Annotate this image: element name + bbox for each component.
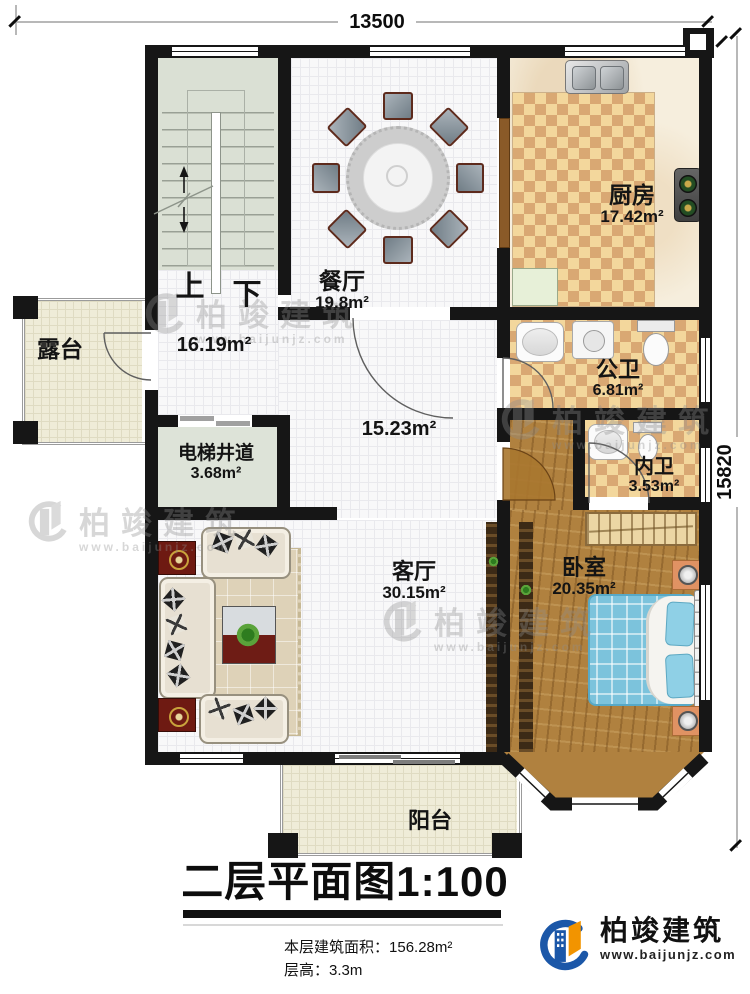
wall — [278, 58, 291, 295]
bay-window-pane-line — [520, 773, 545, 797]
brand-logo-icon — [536, 916, 592, 978]
dining-table-lazy-susan — [386, 165, 408, 187]
wall — [277, 415, 290, 520]
watermark-brand: 柏竣建筑 — [434, 598, 602, 643]
watermark: 柏竣建筑www.baijunjz.com — [498, 396, 720, 452]
room-area: 20.35m² — [542, 580, 626, 599]
room-name: 客厅 — [374, 560, 454, 584]
room-area: 30.15m² — [374, 584, 454, 603]
floor-height-row: 层高：3.3m — [284, 959, 452, 982]
stair-down-label: 下 — [230, 280, 264, 312]
wall — [145, 752, 180, 765]
room-label-balcony: 阳台 — [401, 809, 459, 833]
bedroom-closet — [585, 512, 697, 546]
brand-block: 柏竣建筑 www.baijunjz.com — [536, 916, 736, 978]
sliding-door-panel — [339, 755, 401, 759]
wall — [497, 58, 510, 118]
kitchen-door-leaf — [499, 118, 510, 248]
title-rule-thin — [183, 924, 503, 926]
wall — [145, 390, 158, 752]
watermark: 柏竣建筑www.baijunjz.com — [380, 598, 602, 654]
chimney-flue-opening — [690, 34, 706, 50]
terrace-post — [13, 296, 38, 319]
wall — [699, 700, 712, 752]
elevator-door — [180, 416, 214, 421]
watermark-brand: 柏竣建筑 — [552, 396, 720, 441]
wall — [145, 45, 158, 330]
wall — [145, 415, 178, 427]
dining-chair — [456, 163, 484, 193]
bathroom-sink — [516, 322, 564, 362]
wall — [699, 45, 712, 338]
brand-url: www.baijunjz.com — [600, 947, 736, 962]
room-label-terrace: 露台 — [31, 337, 89, 362]
bay-window-wall — [504, 758, 704, 804]
dining-chair — [312, 163, 340, 193]
room-name: 厨房 — [587, 183, 677, 208]
bay-window-floor — [504, 752, 704, 801]
room-name: 内卫 — [616, 456, 692, 478]
window — [370, 45, 470, 58]
sliding-door-panel — [393, 760, 455, 764]
dimension-tick — [715, 35, 727, 47]
dimension-width-label: 13500 — [338, 11, 416, 35]
stair-up-label: 上 — [173, 272, 207, 304]
bay-window-pane — [520, 773, 545, 797]
room-label-hall: 15.23m² — [354, 418, 444, 440]
wall — [699, 502, 712, 585]
dining-chair — [383, 236, 413, 264]
watermark-brand: 柏竣建筑 — [79, 498, 247, 543]
wall — [460, 752, 510, 765]
room-area: 3.68m² — [166, 465, 266, 483]
window — [699, 585, 712, 700]
room-label-stair-hall: 16.19m² — [168, 334, 260, 356]
floor-area-label: 本层建筑面积： — [284, 939, 389, 956]
bed-pillow — [665, 653, 695, 698]
watermark-logo-icon — [25, 498, 71, 552]
elevator-door — [216, 421, 250, 426]
room-area: 19.8m² — [298, 294, 386, 313]
watermark: 柏竣建筑www.baijunjz.com — [25, 498, 247, 554]
kitchen-cabinet — [512, 268, 558, 306]
watermark-url: www.baijunjz.com — [552, 438, 720, 452]
room-label-elevator: 电梯井道 3.68m² — [166, 444, 266, 482]
wall — [497, 307, 712, 320]
washing-machine — [572, 321, 614, 359]
table-lamp — [678, 711, 698, 731]
window — [565, 45, 685, 58]
wall — [573, 497, 589, 510]
floor-plan: 13500 15820 — [0, 0, 750, 994]
wall — [470, 45, 565, 58]
room-name: 公卫 — [584, 358, 652, 382]
table-lamp — [678, 565, 698, 585]
room-area: 15.23m² — [354, 418, 444, 440]
room-name: 露台 — [31, 337, 89, 362]
gas-stove — [674, 168, 702, 222]
window — [172, 45, 258, 58]
kitchen-sink — [565, 60, 629, 94]
room-area: 3.53m² — [616, 478, 692, 496]
potted-plant — [488, 556, 499, 567]
brand-name: 柏竣建筑 — [600, 916, 736, 947]
room-name: 餐厅 — [298, 269, 386, 294]
room-label-bedroom: 卧室 20.35m² — [542, 556, 626, 599]
window — [699, 448, 712, 502]
plan-title: 二层平面图1:100 — [145, 848, 545, 909]
stair-handrail — [211, 112, 221, 294]
room-name: 电梯井道 — [166, 444, 266, 465]
wall — [497, 320, 510, 358]
bay-window-pane-line — [663, 773, 688, 797]
room-label-public-bath: 公卫 6.81m² — [584, 358, 652, 400]
sliding-door — [335, 752, 460, 765]
window — [180, 752, 243, 765]
floor-height-value: 3.3m — [329, 962, 362, 979]
dining-chair — [383, 92, 413, 120]
watermark-url: www.baijunjz.com — [79, 540, 247, 554]
floor-height-label: 层高： — [284, 962, 329, 979]
side-table — [158, 698, 196, 732]
terrace-railing — [22, 298, 145, 445]
title-rule-thick — [183, 910, 501, 918]
room-label-dining: 餐厅 19.8m² — [298, 269, 386, 313]
coffee-table-plant — [235, 622, 261, 648]
watermark-logo-icon — [498, 396, 544, 450]
room-area: 16.19m² — [168, 334, 260, 356]
room-label-inner-bath: 内卫 3.53m² — [616, 456, 692, 496]
terrace-post — [13, 421, 38, 444]
wall — [258, 45, 370, 58]
room-label-kitchen: 厨房 17.42m² — [587, 183, 677, 227]
room-label-living: 客厅 30.15m² — [374, 560, 454, 603]
window — [699, 338, 712, 402]
watermark-url: www.baijunjz.com — [434, 640, 602, 654]
room-area: 6.81m² — [584, 382, 652, 400]
watermark-logo-icon — [380, 598, 426, 652]
plan-summary: 本层建筑面积：156.28m² 层高：3.3m — [284, 936, 452, 983]
toilet-tank — [637, 320, 675, 332]
floor-area-value: 156.28m² — [389, 939, 452, 956]
room-name: 阳台 — [401, 809, 459, 833]
wall — [243, 752, 335, 765]
room-area: 17.42m² — [587, 208, 677, 227]
potted-plant — [520, 584, 532, 596]
bed-pillow — [665, 601, 695, 646]
bay-window-pane — [663, 773, 688, 797]
floor-area-row: 本层建筑面积：156.28m² — [284, 936, 452, 959]
room-name: 卧室 — [542, 556, 626, 580]
